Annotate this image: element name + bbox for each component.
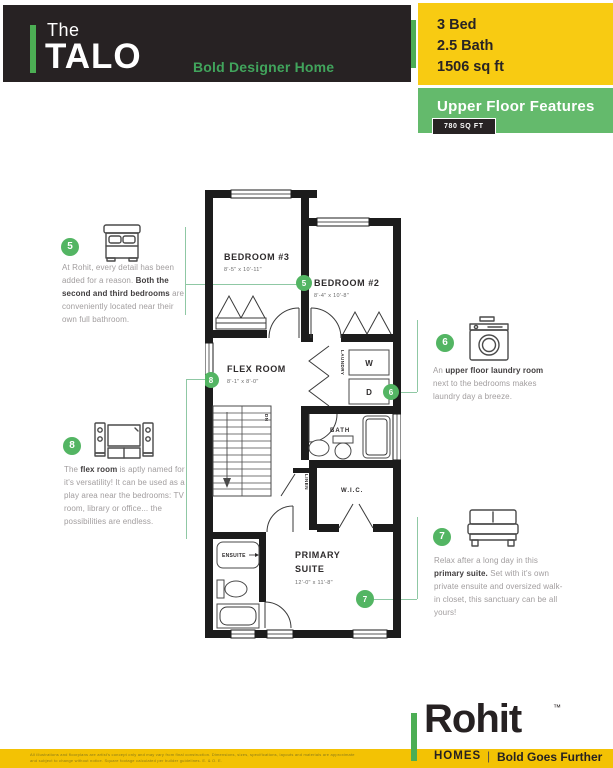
door-bedroom3 (269, 308, 299, 338)
annotation-7-marker: 7 (433, 528, 451, 546)
bath-tub (363, 416, 390, 458)
bed-top-icon (100, 224, 144, 262)
tagline: Bold Designer Home (193, 59, 334, 75)
bedroom2-label: BEDROOM #2 (314, 278, 380, 288)
bath-label: BATH (330, 428, 350, 434)
bedroom2-dims: 8'-4" x 10'-8" (314, 293, 349, 299)
bath-sink (309, 440, 329, 456)
washer-label: W (365, 359, 373, 368)
annotation-5-text: At Rohit, every detail has been added fo… (62, 261, 188, 326)
flex-room-dims: 8'-1" x 8'-0" (227, 379, 259, 385)
logo-brand: Rohit (424, 697, 521, 742)
logo-slogan: Bold Goes Further (497, 750, 602, 764)
wic-label: W.I.C. (341, 488, 363, 494)
dryer-label: D (366, 388, 372, 397)
laundry-bifold-doors (309, 346, 329, 406)
features-title: Upper Floor Features (437, 98, 595, 115)
disclaimer-line-1: All illustrations and floorplans are art… (30, 752, 365, 758)
ensuite-label: ENSUITE (222, 553, 246, 559)
annotation-7-text: Relax after a long day in this primary s… (434, 554, 564, 619)
floor-plan: DN W D LAUNDRY BATH LINEN W.I.C. ENSUITE (205, 188, 401, 640)
logo-homes: HOMES (434, 750, 481, 762)
primary-suite-label-1: PRIMARY (295, 550, 340, 560)
primary-suite-label-2: SUITE (295, 564, 325, 574)
svg-text:7: 7 (363, 595, 368, 604)
wall-divider-lower (301, 308, 309, 342)
brand-name: TALO (45, 37, 142, 77)
logo-trademark: ™ (553, 703, 561, 712)
ensuite-toilet (225, 581, 247, 597)
bath-toilet (335, 443, 351, 459)
window-primary-b (267, 630, 293, 638)
wall-wic-bottom-b (373, 524, 401, 532)
annotation-8-text: The flex room is aptly named for it's ve… (64, 463, 190, 528)
svg-text:5: 5 (302, 279, 307, 288)
wall-wic-bottom-a (317, 524, 339, 532)
plan-marker-8: 8 (205, 372, 219, 388)
window-right (393, 414, 401, 460)
laundry-room: W D LAUNDRY (340, 350, 389, 404)
wall-bedroom3-bottom (213, 330, 267, 338)
door-bedroom2 (311, 308, 341, 338)
laundry-label: LAUNDRY (340, 350, 345, 375)
annotation-8-marker: 8 (63, 437, 81, 455)
wall-ensuite-top (213, 532, 265, 539)
annotation-5-marker: 5 (61, 238, 79, 256)
header-accent-sliver (411, 20, 416, 68)
brand-accent-bar (30, 25, 36, 73)
flyer-page: The TALO Bold Designer Home 3 Bed 2.5 Ba… (0, 0, 613, 768)
closet-bedroom3 (216, 296, 266, 329)
ensuite: ENSUITE (217, 542, 259, 628)
flex-room-label: FLEX ROOM (227, 364, 286, 374)
door-wic-double (339, 504, 373, 528)
bedroom3-dims: 8'-5" x 10'-11" (224, 267, 262, 273)
spec-beds: 3 Bed (437, 15, 613, 36)
washer-icon (468, 316, 510, 362)
annotation-6-text: An upper floor laundry room next to the … (433, 364, 559, 403)
connector-6-vertical (417, 320, 418, 392)
plan-marker-6: 6 (383, 384, 399, 400)
logo-accent-bar (411, 713, 417, 761)
svg-text:6: 6 (389, 388, 394, 397)
area-badge: 780 SQ FT (432, 118, 496, 135)
disclaimer-text: All illustrations and floorplans are art… (30, 752, 365, 763)
logo-divider: | (487, 749, 490, 763)
primary-suite-dims: 12'-0" x 11'-8" (295, 580, 333, 586)
window-bedroom3 (231, 190, 291, 198)
disclaimer-line-2: and subject to change without notice. Sq… (30, 758, 365, 764)
wall-bath-bottom (309, 460, 401, 468)
wall-bath-left (301, 414, 309, 460)
wall-bedroom2-bottom-b (341, 334, 401, 342)
door-primary (267, 506, 293, 532)
svg-text:8: 8 (209, 376, 214, 385)
tv-icon (93, 419, 155, 461)
ensuite-toilet-tank (217, 580, 224, 598)
stairs: DN (213, 406, 271, 496)
linen-label: LINEN (304, 474, 309, 490)
bed-front-icon (464, 508, 522, 548)
wall-left (205, 190, 213, 638)
door-linen (281, 474, 295, 496)
annotation-6-marker: 6 (436, 334, 454, 352)
wall-laundry-bottom (301, 406, 401, 414)
header-bar: The TALO Bold Designer Home (3, 5, 411, 82)
bath-toilet-tank (333, 436, 353, 443)
plan-marker-5: 5 (296, 275, 312, 291)
wall-wic-left (309, 468, 317, 530)
stairs-dn-label: DN (264, 414, 269, 422)
window-bedroom2 (317, 218, 369, 226)
window-primary-a (231, 630, 255, 638)
connector-7-vertical (417, 517, 418, 599)
wall-linen-top (293, 468, 309, 473)
spec-sqft: 1506 sq ft (437, 57, 613, 78)
window-primary-c (353, 630, 387, 638)
spec-box: 3 Bed 2.5 Bath 1506 sq ft (418, 3, 613, 85)
bathroom: BATH (309, 416, 390, 459)
door-ensuite (265, 602, 291, 628)
plan-marker-7: 7 (356, 590, 374, 608)
bedroom3-label: BEDROOM #3 (224, 252, 290, 262)
closet-bedroom2 (343, 312, 391, 334)
wall-ensuite-right (259, 532, 266, 602)
spec-baths: 2.5 Bath (437, 36, 613, 57)
